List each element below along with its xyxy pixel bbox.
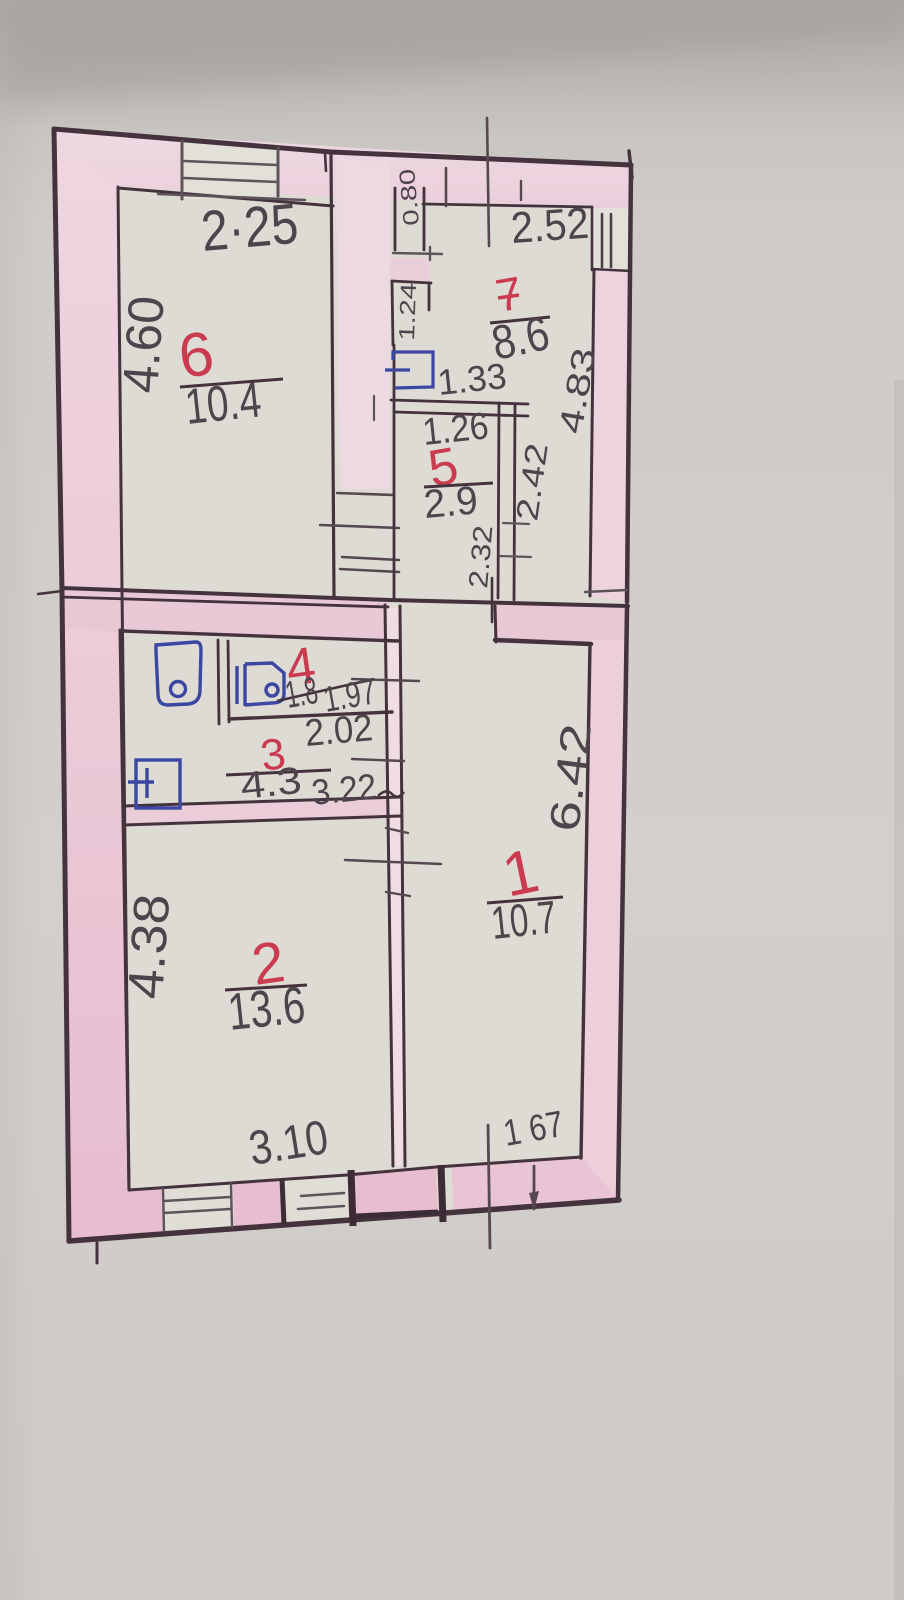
svg-text:1.24: 1.24 <box>394 282 421 341</box>
svg-text:2.32: 2.32 <box>463 524 498 589</box>
svg-text:10.4: 10.4 <box>182 371 263 435</box>
svg-text:4.60: 4.60 <box>112 294 175 395</box>
svg-text:2.02: 2.02 <box>303 707 374 755</box>
svg-text:13.6: 13.6 <box>225 976 308 1042</box>
svg-text:0.80: 0.80 <box>394 168 424 227</box>
svg-text:2·25: 2·25 <box>199 192 301 264</box>
svg-text:3.22: 3.22 <box>310 765 379 813</box>
svg-text:2.52: 2.52 <box>509 199 590 253</box>
svg-text:2.9: 2.9 <box>422 478 480 527</box>
svg-text:1.33: 1.33 <box>436 355 509 403</box>
svg-text:4.38: 4.38 <box>117 892 180 1001</box>
svg-text:4.3: 4.3 <box>239 760 304 808</box>
svg-text:10.7: 10.7 <box>489 890 559 949</box>
